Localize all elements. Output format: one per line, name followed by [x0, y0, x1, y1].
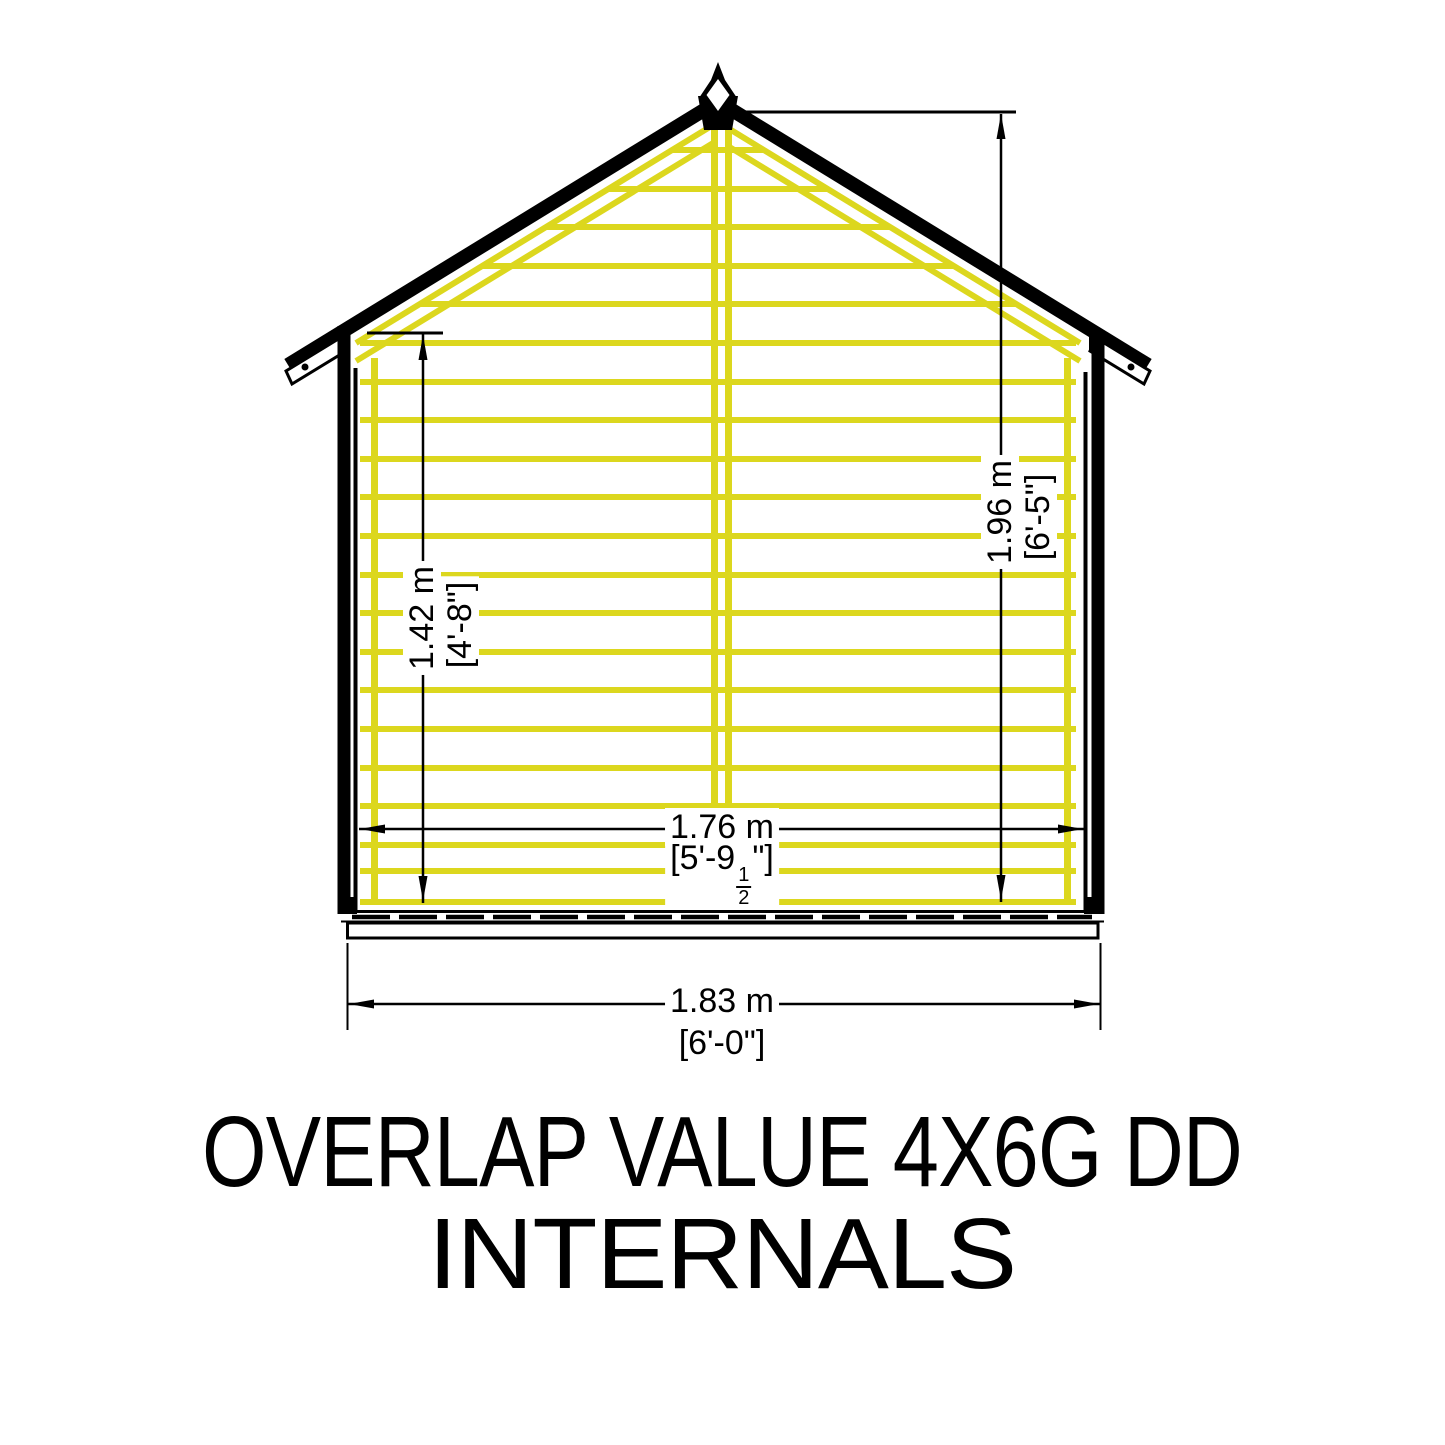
central-stud	[711, 124, 732, 905]
floor-assembly	[341, 912, 1104, 939]
internal-width-imperial-suffix: "]	[752, 839, 774, 877]
fraction-numerator: 1	[736, 865, 751, 886]
ridge-height-metric-label: 1.96 m	[981, 455, 1019, 569]
internal-width-imperial-label: [5'-912"]	[665, 839, 779, 909]
eaves-height-metric-label: 1.42 m	[403, 561, 441, 675]
external-width-metric-label: 1.83 m	[665, 982, 779, 1020]
dim-ridge-height	[740, 112, 1016, 902]
shed-internals-diagram: OVERLAP VALUE 4X6G DD INTERNALS 1.42 m […	[0, 0, 1445, 1445]
eaves-height-imperial-label: [4'-8"]	[441, 577, 479, 674]
title-line-1: OVERLAP VALUE 4X6G DD	[202, 1096, 1242, 1208]
external-width-imperial-label: [6'-0"]	[674, 1024, 771, 1062]
internal-width-fraction: 12	[736, 865, 751, 909]
internal-width-imperial-prefix: [5'-9	[670, 839, 735, 877]
ridge-height-imperial-label: [6'-5"]	[1019, 469, 1057, 566]
title-line-2: INTERNALS	[428, 1198, 1016, 1310]
shed-drawing-canvas: OVERLAP VALUE 4X6G DD INTERNALS	[0, 0, 1445, 1445]
fraction-denominator: 2	[736, 886, 751, 909]
drawing-title: OVERLAP VALUE 4X6G DD INTERNALS	[202, 1096, 1242, 1310]
